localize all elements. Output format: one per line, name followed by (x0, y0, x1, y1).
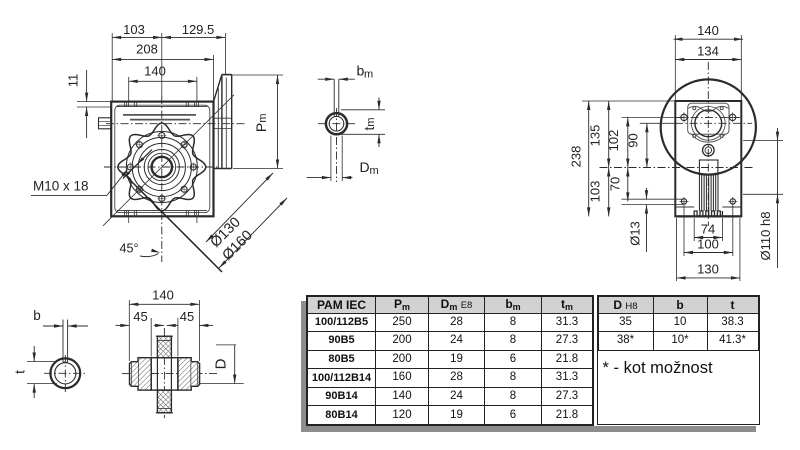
svg-text:m: m (257, 113, 269, 122)
svg-text:102: 102 (606, 130, 621, 152)
svg-text:D: D (360, 159, 370, 175)
svg-text:t: t (13, 370, 28, 374)
svg-text:b: b (33, 308, 41, 323)
svg-text:103: 103 (123, 22, 145, 37)
svg-text:D: D (213, 358, 230, 369)
svg-text:90: 90 (626, 133, 641, 147)
svg-text:45: 45 (133, 309, 147, 324)
svg-text:70: 70 (608, 177, 623, 191)
svg-text:100: 100 (697, 237, 719, 252)
svg-text:Ø110 h8: Ø110 h8 (758, 212, 773, 261)
svg-text:130: 130 (697, 262, 719, 277)
svg-text:103: 103 (588, 181, 603, 203)
svg-text:m: m (370, 165, 379, 177)
svg-text:45: 45 (180, 309, 194, 324)
svg-text:208: 208 (136, 42, 158, 57)
svg-text:P: P (253, 123, 269, 132)
svg-text:135: 135 (588, 125, 603, 147)
svg-text:238: 238 (569, 146, 584, 168)
svg-text:129.5: 129.5 (182, 22, 215, 37)
svg-text:140: 140 (144, 63, 166, 78)
svg-text:134: 134 (697, 43, 719, 58)
svg-text:m: m (364, 69, 373, 81)
svg-text:74: 74 (701, 222, 715, 237)
svg-text:Ø13: Ø13 (628, 221, 643, 246)
svg-text:45°: 45° (120, 242, 139, 256)
svg-text:M10 x 18: M10 x 18 (33, 179, 89, 194)
svg-text:11: 11 (66, 74, 81, 88)
svg-text:140: 140 (152, 288, 174, 303)
svg-text:140: 140 (697, 23, 719, 38)
svg-text:m: m (365, 117, 377, 126)
